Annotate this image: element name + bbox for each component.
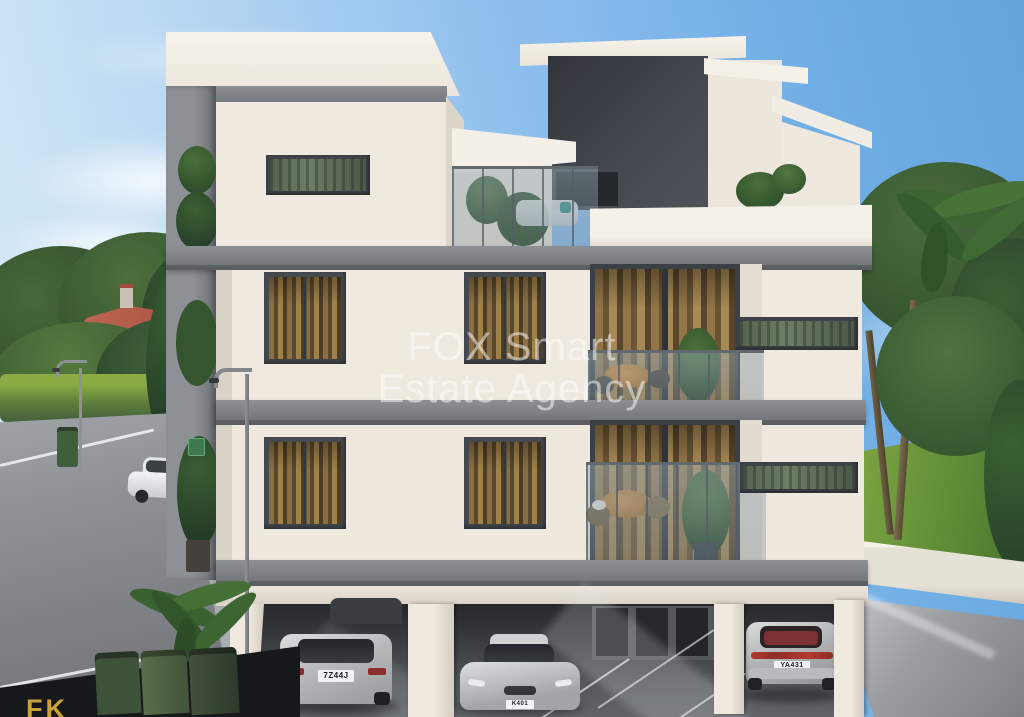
plate-text: 7Z44J <box>323 671 348 680</box>
watermark-line1: FOX Smart <box>0 326 1024 368</box>
terrace-glass-railing <box>452 166 598 249</box>
street-lamp-pole-near <box>245 374 249 662</box>
watermark-line2: Estate Agency <box>0 368 1024 410</box>
balcony-plant <box>176 192 218 250</box>
street-sign-green <box>188 438 205 456</box>
terrace-parapet <box>590 204 872 250</box>
white-car-wheel <box>135 489 149 503</box>
dumpster <box>94 651 141 715</box>
slit-window-top-floor <box>266 155 370 195</box>
garage-back-opening <box>676 608 708 656</box>
parapet-plant <box>772 164 806 194</box>
garage-pier <box>714 604 744 714</box>
sedan-rear-window <box>298 639 374 663</box>
slit-window-floor1-right <box>740 462 858 493</box>
window-floor1-left <box>264 437 346 529</box>
watermark: FOX Smart Estate Agency <box>0 326 1024 411</box>
coupe-shadow <box>742 688 842 702</box>
window-glass <box>469 442 541 524</box>
balcony-plant <box>178 146 216 194</box>
garage-pier <box>408 604 454 717</box>
background-house-chimney <box>120 284 133 308</box>
garage-slab-band <box>216 560 868 586</box>
window-glass <box>744 466 854 489</box>
coupe-taillight-band <box>751 652 833 659</box>
coupe-bumper <box>748 668 836 679</box>
sedan-license-plate: 7Z44J <box>318 670 354 682</box>
dumpster <box>140 649 189 715</box>
floor-slab-band <box>166 246 872 270</box>
sports-car-license-plate: K401 <box>506 700 534 709</box>
rendered-scene: 7Z44J K401 YA431 <box>0 0 1024 717</box>
coupe-red-interior <box>764 631 818 645</box>
plate-text: K401 <box>512 701 528 707</box>
sedan-taillight <box>368 668 386 675</box>
garage-pier <box>834 600 864 717</box>
window-glass <box>270 159 366 191</box>
dumpster <box>188 647 239 715</box>
sports-car-grille <box>504 686 536 695</box>
balcony-railing-floor1 <box>586 462 766 563</box>
corner-label: FK <box>26 694 68 717</box>
plant-pot <box>186 540 210 572</box>
coupe-wheel <box>748 678 762 690</box>
litter-bin <box>57 427 78 467</box>
silver-sports-car: K401 <box>452 618 588 717</box>
silver-coupe: YA431 <box>742 600 846 706</box>
window-floor1-center <box>464 437 546 529</box>
window-glass <box>269 442 341 524</box>
sedan-wheel <box>374 692 390 705</box>
